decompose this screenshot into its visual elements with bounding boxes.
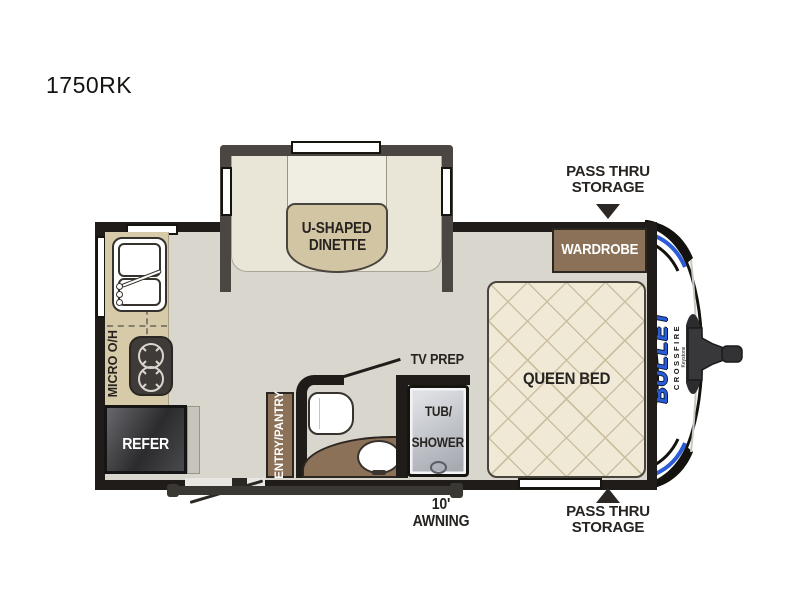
micro-overhead-label: MICRO O/H [107,330,120,397]
entry-pantry-cabinet: ENTRY/PANTRY [266,392,294,478]
wardrobe-cabinet: WARDROBE [552,228,647,273]
slideout-window-right [441,167,452,216]
burner-icons [129,336,173,396]
pass-thru-bottom-line1: PASS THRU [560,504,656,520]
dinette-label-line1: U-SHAPED [302,221,372,238]
faucet-knob-icon [116,299,123,306]
arrow-up-icon [596,488,620,503]
toilet-tank-line [319,398,320,429]
arrow-down-icon [596,204,620,219]
pass-thru-storage-label-top: PASS THRU STORAGE [560,164,656,196]
refer-side-panel [187,406,200,474]
dinette-table: U-SHAPED DINETTE [286,203,388,273]
floorplan-canvas: 1750RK BULLET CROSSFIRE Keystone U-SHAPE… [0,0,800,600]
drain-icon [430,461,447,474]
pass-thru-storage-label-bottom: PASS THRU STORAGE [560,504,656,536]
hitch-icon [686,312,744,396]
dinette-label-line2: DINETTE [308,238,365,255]
slideout-window-left [221,167,232,216]
series-name: CROSSFIRE [673,324,681,390]
slideout-window-top [291,141,381,154]
vanity-faucet-icon [372,470,386,475]
faucet-knob-icon [116,283,123,290]
entry-pantry-label: ENTRY/PANTRY [274,391,286,479]
faucet-knob-icon [116,291,123,298]
tub-label-line1: TUB/ [424,405,451,419]
window-bottom-wall [518,478,602,489]
awning-bar [167,486,463,495]
toilet [308,392,354,435]
model-number: 1750RK [46,72,132,99]
microwave-overhead: MICRO O/H [103,328,125,400]
pass-thru-top-line1: PASS THRU [560,164,656,180]
counter-divider-horizontal [107,325,167,327]
refer-label: REFER [122,436,169,453]
awning-label: 10' AWNING [403,496,479,530]
pass-thru-bottom-line2: STORAGE [560,520,656,536]
queen-bed: QUEEN BED [487,281,646,478]
queen-bed-label: QUEEN BED [523,370,610,388]
tub-shower: TUB/ SHOWER [407,385,469,477]
tub-label-line2: SHOWER [412,436,464,450]
wardrobe-label: WARDROBE [561,242,638,258]
dinette-well [287,156,387,208]
refrigerator: REFER [104,405,187,474]
tv-prep-label: TV PREP [410,353,463,369]
pass-thru-top-line2: STORAGE [560,180,656,196]
vanity-sink [357,440,401,474]
